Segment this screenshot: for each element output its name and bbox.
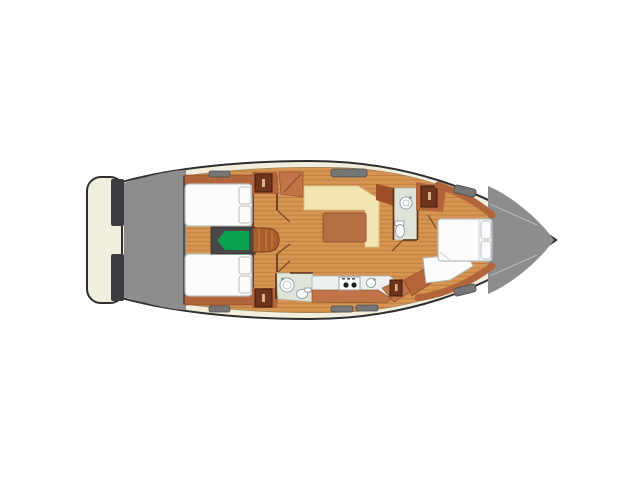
window-top-aft	[209, 171, 230, 177]
faucet	[409, 196, 412, 199]
burner	[351, 282, 356, 287]
locker-handle	[262, 294, 265, 302]
stove-knob	[352, 278, 355, 280]
stove-knob	[347, 278, 350, 280]
yacht-floorplan-canvas	[0, 0, 640, 480]
aft-bed-bottom	[185, 254, 252, 296]
window-top-mid	[331, 169, 367, 177]
aft-bed-top	[185, 184, 252, 226]
locker-handle	[428, 192, 431, 200]
burner	[343, 282, 348, 287]
aft-deck	[124, 170, 186, 310]
window-bottom-mid1	[331, 306, 353, 312]
locker-handle	[395, 284, 398, 291]
pillow	[239, 257, 251, 274]
toilet-tank	[305, 288, 311, 292]
pillow	[239, 187, 251, 204]
window-bottom-mid2	[356, 305, 378, 311]
salon-table	[323, 213, 366, 242]
window-bottom-aft	[209, 306, 230, 312]
pillow	[239, 206, 251, 223]
pillow	[481, 241, 491, 259]
pillow	[239, 276, 251, 293]
pillow	[481, 221, 491, 239]
transom-bar-top	[111, 179, 124, 226]
toilet	[396, 225, 405, 238]
transom-bar-bottom	[111, 254, 124, 301]
stove-knob	[342, 278, 345, 280]
bow-bed	[438, 219, 492, 261]
foredeck	[488, 186, 554, 294]
faucet	[373, 278, 376, 281]
locker-handle	[262, 179, 265, 187]
faucet	[281, 278, 284, 281]
yacht-floorplan	[0, 0, 640, 480]
galley-cabinets	[312, 290, 392, 303]
